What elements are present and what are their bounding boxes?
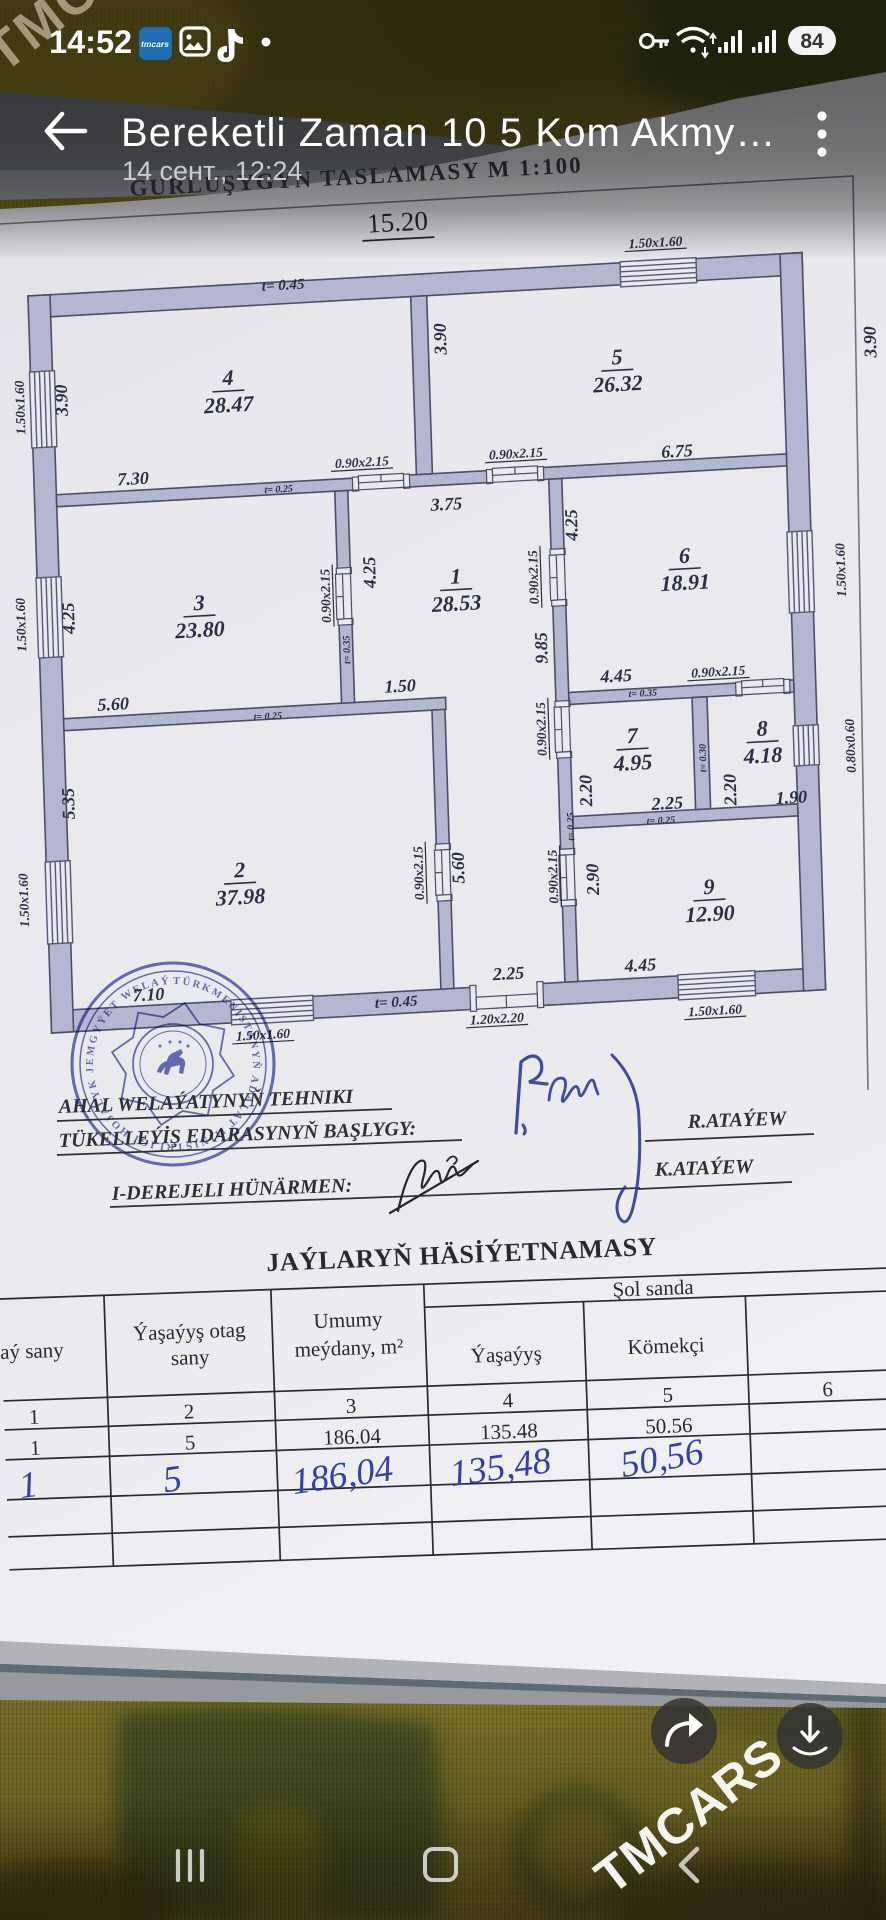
svg-text:9.85: 9.85 — [531, 632, 552, 665]
svg-text:Ýaşaýyş otag: Ýaşaýyş otag — [133, 1317, 247, 1345]
svg-text:5.60: 5.60 — [97, 693, 129, 715]
svg-text:37.98: 37.98 — [214, 883, 265, 911]
svg-text:2: 2 — [183, 1399, 194, 1423]
svg-text:t= 0.25: t= 0.25 — [565, 812, 577, 841]
svg-text:7.30: 7.30 — [117, 468, 149, 490]
svg-text:18.91: 18.91 — [660, 568, 710, 596]
svg-text:6: 6 — [679, 542, 692, 568]
svg-text:2.20: 2.20 — [720, 773, 741, 807]
svg-text:Kömekçi: Kömekçi — [627, 1332, 705, 1359]
svg-text:R.ATAÝEW: R.ATAÝEW — [686, 1107, 787, 1133]
svg-text:K.ATAÝEW: K.ATAÝEW — [653, 1155, 754, 1181]
svg-text:1.50x1.60: 1.50x1.60 — [13, 597, 30, 652]
svg-text:2.25: 2.25 — [491, 962, 524, 984]
svg-text:4: 4 — [502, 1388, 514, 1412]
svg-text:28.47: 28.47 — [203, 391, 255, 419]
svg-text:3: 3 — [192, 590, 205, 616]
svg-text:4.25: 4.25 — [561, 509, 582, 543]
svg-text:0.90x2.15: 0.90x2.15 — [545, 849, 562, 904]
svg-text:6.75: 6.75 — [661, 440, 693, 462]
svg-text:Jaý sany: Jaý sany — [0, 1338, 65, 1365]
svg-text:3.90: 3.90 — [859, 326, 880, 360]
svg-text:4.95: 4.95 — [612, 749, 652, 776]
svg-text:t= 0.25: t= 0.25 — [253, 711, 282, 724]
svg-text:3: 3 — [345, 1394, 356, 1418]
svg-text:1: 1 — [28, 1405, 39, 1429]
svg-text:4.25: 4.25 — [359, 556, 380, 590]
svg-text:5: 5 — [184, 1430, 195, 1454]
svg-text:6: 6 — [822, 1377, 833, 1401]
svg-text:3.75: 3.75 — [429, 493, 462, 515]
svg-text:1.50: 1.50 — [384, 675, 416, 697]
svg-text:1: 1 — [30, 1436, 41, 1460]
svg-text:84: 84 — [800, 30, 824, 53]
svg-text:26.32: 26.32 — [592, 370, 643, 398]
svg-text:1: 1 — [450, 563, 462, 589]
svg-text:186.04: 186.04 — [323, 1424, 382, 1450]
svg-text:t= 0.30: t= 0.30 — [698, 744, 710, 773]
svg-text:sany: sany — [170, 1345, 210, 1370]
svg-text:0.90x2.15: 0.90x2.15 — [533, 701, 550, 756]
svg-text:t= 0.45: t= 0.45 — [262, 277, 306, 295]
svg-text:1.90: 1.90 — [775, 786, 807, 808]
svg-text:2: 2 — [233, 857, 246, 883]
svg-text:1.50x1.60: 1.50x1.60 — [12, 380, 29, 435]
svg-text:0.80x0.60: 0.80x0.60 — [842, 718, 859, 773]
svg-text:t= 0.35: t= 0.35 — [341, 635, 353, 664]
svg-text:Umumy: Umumy — [313, 1307, 383, 1333]
svg-text:2.25: 2.25 — [650, 792, 683, 814]
svg-text:5: 5 — [611, 344, 623, 370]
svg-text:14 сент., 12:24: 14 сент., 12:24 — [122, 156, 302, 186]
svg-text:2.90: 2.90 — [582, 863, 603, 897]
svg-text:meýdany, m²: meýdany, m² — [294, 1334, 404, 1362]
svg-text:0.90x2.15: 0.90x2.15 — [525, 550, 542, 605]
svg-text:4.25: 4.25 — [58, 602, 79, 636]
svg-text:8: 8 — [756, 715, 768, 741]
svg-text:12.90: 12.90 — [685, 900, 735, 928]
svg-text:t= 0.25: t= 0.25 — [647, 815, 676, 828]
svg-text:Bereketli Zaman 10 5 Kom Akmy…: Bereketli Zaman 10 5 Kom Akmy… — [121, 111, 776, 155]
svg-text:2.20: 2.20 — [575, 774, 596, 808]
svg-text:4.45: 4.45 — [599, 665, 632, 687]
svg-text:5.35: 5.35 — [58, 787, 79, 820]
svg-text:t= 0.45: t= 0.45 — [375, 993, 419, 1011]
svg-text:4: 4 — [221, 365, 234, 391]
svg-text:7: 7 — [626, 723, 639, 749]
svg-text:Ýaşaýyş: Ýaşaýyş — [470, 1341, 542, 1367]
svg-text:135.48: 135.48 — [480, 1418, 539, 1444]
svg-text:4.45: 4.45 — [623, 954, 656, 976]
svg-text:t= 0.35: t= 0.35 — [628, 688, 657, 701]
svg-text:9: 9 — [703, 874, 715, 900]
svg-text:5: 5 — [662, 1383, 673, 1407]
svg-text:23.80: 23.80 — [174, 616, 225, 644]
svg-text:4.18: 4.18 — [742, 742, 782, 769]
svg-text:28.53: 28.53 — [430, 589, 481, 617]
svg-text:t= 0.25: t= 0.25 — [264, 484, 293, 497]
svg-text:Şol sanda: Şol sanda — [612, 1275, 695, 1302]
svg-text:0.90x2.15: 0.90x2.15 — [317, 568, 334, 623]
svg-text:3.90: 3.90 — [51, 384, 72, 418]
svg-text:1.50x1.60: 1.50x1.60 — [832, 542, 849, 597]
svg-text:tmcars: tmcars — [141, 39, 169, 49]
svg-text:0.90x2.15: 0.90x2.15 — [410, 846, 427, 901]
svg-text:3.90: 3.90 — [430, 323, 451, 357]
svg-text:5.60: 5.60 — [448, 852, 469, 885]
svg-text:1.50x1.60: 1.50x1.60 — [15, 873, 32, 928]
